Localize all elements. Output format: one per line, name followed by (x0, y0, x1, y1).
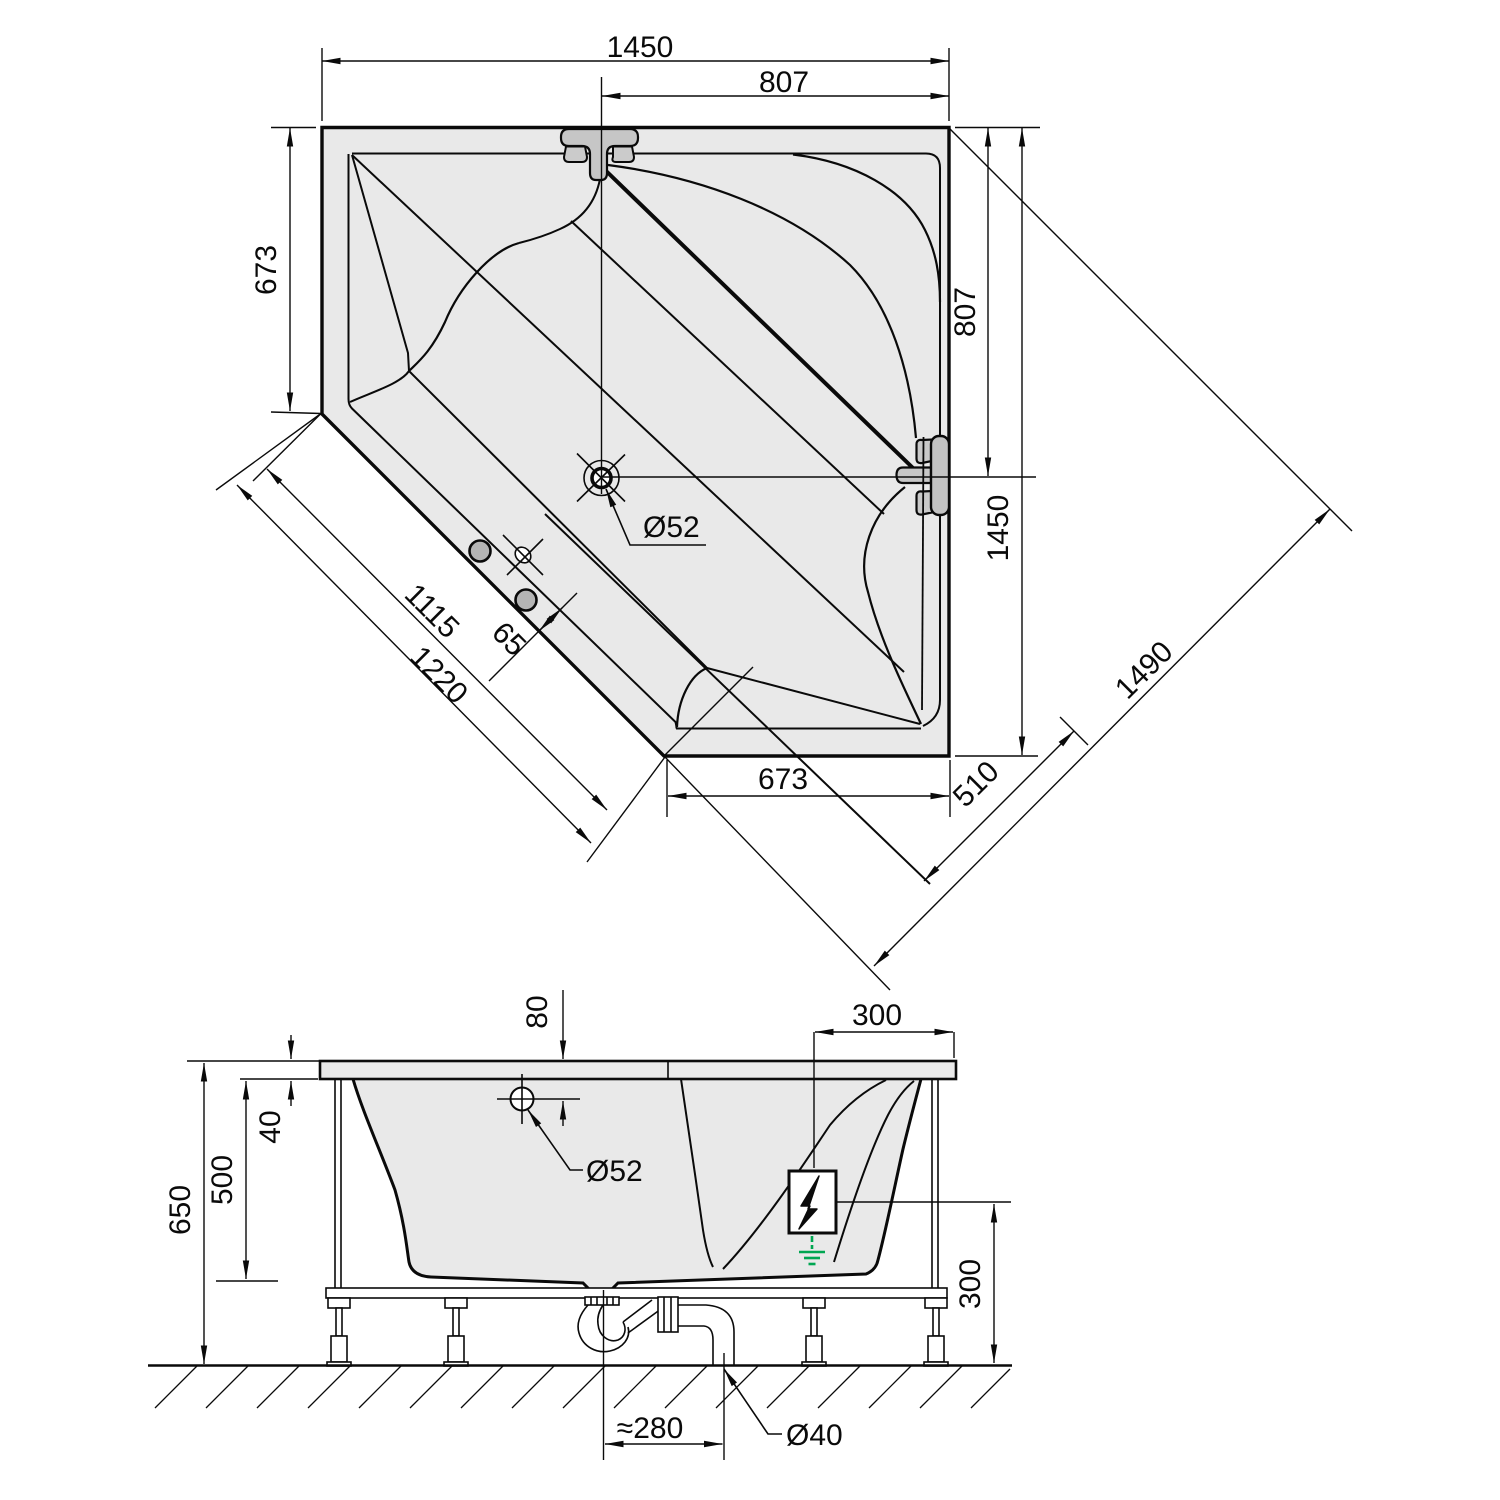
svg-text:673: 673 (758, 763, 808, 796)
svg-text:1450: 1450 (607, 31, 674, 64)
svg-text:500: 500 (206, 1155, 239, 1205)
svg-text:510: 510 (947, 755, 1006, 814)
svg-text:807: 807 (949, 287, 982, 337)
svg-text:1450: 1450 (982, 495, 1015, 562)
svg-text:Ø52: Ø52 (643, 511, 700, 544)
svg-text:650: 650 (164, 1185, 197, 1235)
svg-text:807: 807 (759, 66, 809, 99)
svg-text:80: 80 (521, 995, 554, 1028)
svg-text:≈280: ≈280 (617, 1412, 684, 1445)
svg-text:673: 673 (250, 245, 283, 295)
svg-text:Ø40: Ø40 (786, 1419, 843, 1452)
svg-text:Ø52: Ø52 (586, 1155, 643, 1188)
svg-text:65: 65 (485, 616, 532, 663)
svg-text:300: 300 (954, 1259, 987, 1309)
svg-text:40: 40 (254, 1110, 287, 1143)
svg-text:300: 300 (852, 999, 902, 1032)
svg-text:1220: 1220 (403, 640, 474, 711)
